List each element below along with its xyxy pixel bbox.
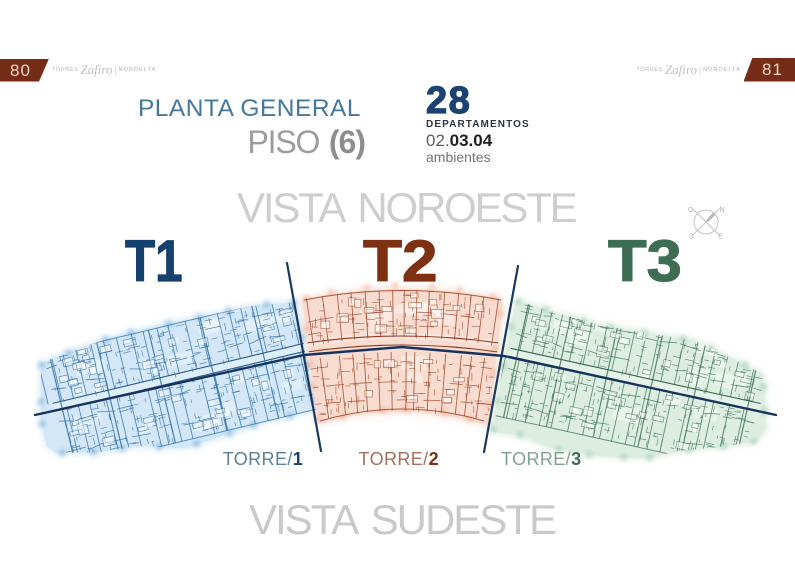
svg-text:E: E <box>719 234 724 241</box>
svg-text:O: O <box>688 207 694 214</box>
svg-text:N: N <box>720 207 725 214</box>
svg-text:S: S <box>689 234 694 241</box>
